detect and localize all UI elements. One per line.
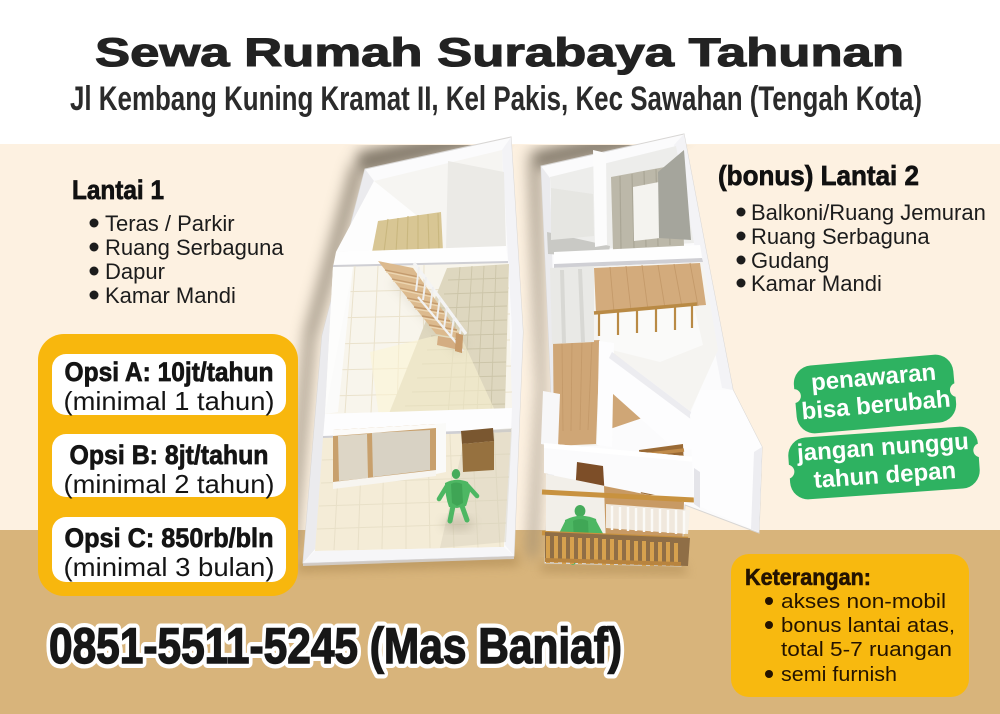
svg-text:akses non-mobil: akses non-mobil bbox=[781, 591, 946, 613]
svg-text:Lantai 1: Lantai 1 bbox=[72, 175, 164, 205]
svg-text:Sewa Rumah Surabaya Tahunan: Sewa Rumah Surabaya Tahunan bbox=[95, 31, 904, 75]
svg-text:Ruang Serbaguna: Ruang Serbaguna bbox=[105, 235, 284, 260]
svg-text:(minimal 1 tahun): (minimal 1 tahun) bbox=[64, 386, 275, 416]
svg-text:Gudang: Gudang bbox=[751, 248, 829, 273]
svg-text:semi furnish: semi furnish bbox=[781, 664, 897, 686]
svg-text:total 5-7 ruangan: total 5-7 ruangan bbox=[781, 639, 952, 661]
svg-text:Ruang Serbaguna: Ruang Serbaguna bbox=[751, 224, 930, 249]
svg-text:Keterangan:: Keterangan: bbox=[745, 564, 871, 590]
svg-text:(minimal 3 bulan): (minimal 3 bulan) bbox=[64, 552, 275, 582]
svg-text:0851-5511-5245 (Mas Baniaf): 0851-5511-5245 (Mas Baniaf) bbox=[49, 618, 622, 674]
svg-text:Opsi A: 10jt/tahun: Opsi A: 10jt/tahun bbox=[65, 357, 274, 387]
svg-text:Dapur: Dapur bbox=[105, 259, 165, 284]
svg-text:Opsi B: 8jt/tahun: Opsi B: 8jt/tahun bbox=[70, 440, 269, 470]
svg-text:Jl Kembang Kuning Kramat II, K: Jl Kembang Kuning Kramat II, Kel Pakis, … bbox=[70, 80, 922, 118]
svg-text:Balkoni/Ruang Jemuran: Balkoni/Ruang Jemuran bbox=[751, 200, 986, 225]
svg-text:Teras / Parkir: Teras / Parkir bbox=[105, 211, 235, 236]
svg-text:bonus lantai atas,: bonus lantai atas, bbox=[781, 615, 955, 637]
svg-text:Kamar Mandi: Kamar Mandi bbox=[751, 271, 882, 296]
svg-text:Opsi C: 850rb/bln: Opsi C: 850rb/bln bbox=[65, 523, 274, 553]
svg-text:Kamar Mandi: Kamar Mandi bbox=[105, 283, 236, 308]
svg-text:(minimal 2 tahun): (minimal 2 tahun) bbox=[64, 469, 275, 499]
svg-text:(bonus) Lantai 2: (bonus) Lantai 2 bbox=[718, 160, 919, 191]
